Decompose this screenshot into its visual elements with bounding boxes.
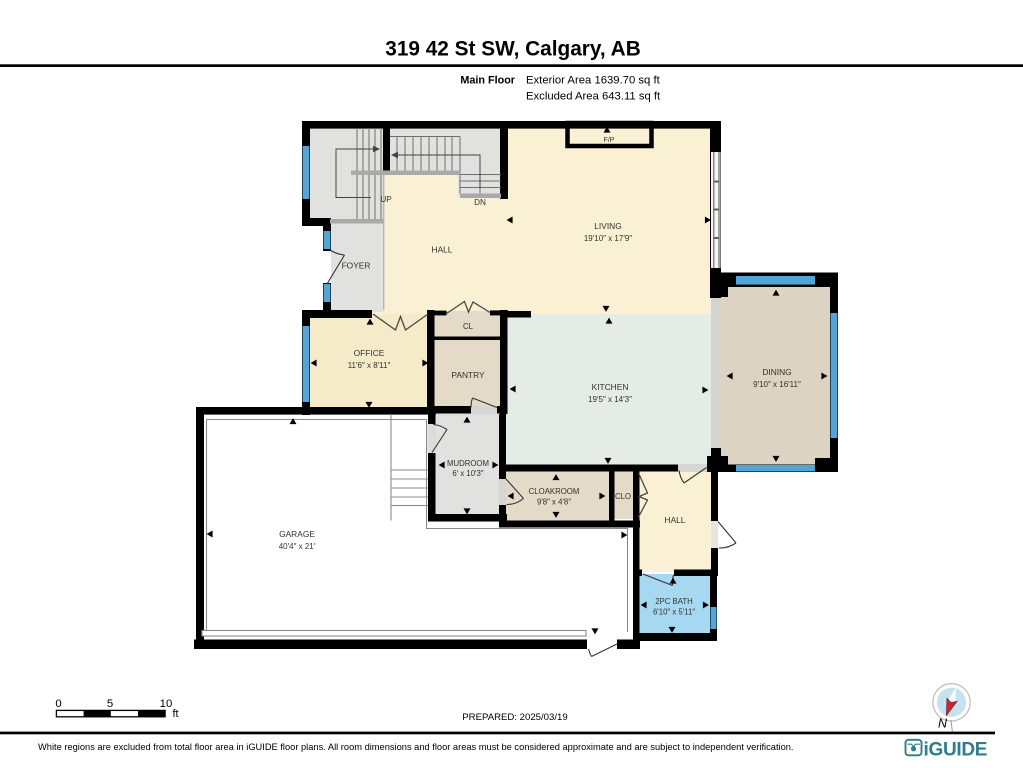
svg-text:iGUIDE: iGUIDE (924, 740, 988, 761)
svg-text:CLO: CLO (615, 492, 631, 501)
svg-text:2PC BATH: 2PC BATH (655, 597, 693, 606)
svg-text:GARAGE: GARAGE (279, 529, 315, 539)
svg-text:0: 0 (55, 698, 61, 710)
svg-text:9′10″ x 16′11″: 9′10″ x 16′11″ (753, 380, 801, 389)
svg-text:LIVING: LIVING (594, 221, 621, 231)
svg-text:DINING: DINING (762, 367, 791, 377)
svg-text:Main Floor: Main Floor (460, 75, 515, 87)
svg-text:CLOAKROOM: CLOAKROOM (529, 487, 580, 496)
svg-text:DN: DN (474, 198, 486, 207)
svg-text:10: 10 (160, 698, 173, 710)
svg-text:40′4″ x 21′: 40′4″ x 21′ (279, 542, 316, 551)
svg-text:19′5″ x 14′3″: 19′5″ x 14′3″ (588, 395, 632, 404)
svg-text:White regions are excluded fro: White regions are excluded from total fl… (38, 742, 794, 752)
svg-text:9′8″ x 4′8″: 9′8″ x 4′8″ (537, 498, 571, 507)
svg-text:HALL: HALL (432, 245, 453, 255)
svg-text:11′6″ x 8′11″: 11′6″ x 8′11″ (348, 361, 391, 370)
svg-text:5: 5 (107, 698, 113, 710)
svg-text:MUDROOM: MUDROOM (447, 459, 489, 468)
svg-text:KITCHEN: KITCHEN (592, 382, 629, 392)
svg-text:Exterior Area 1639.70 sq ft: Exterior Area 1639.70 sq ft (526, 75, 661, 87)
svg-text:PREPARED: 2025/03/19: PREPARED: 2025/03/19 (462, 712, 567, 723)
svg-text:6′10″ x 5′11″: 6′10″ x 5′11″ (653, 608, 695, 617)
svg-text:F/P: F/P (604, 137, 615, 144)
svg-text:UP: UP (380, 195, 392, 204)
svg-text:19′10″ x 17′9″: 19′10″ x 17′9″ (584, 234, 632, 243)
svg-text:319 42 St SW, Calgary, AB: 319 42 St SW, Calgary, AB (385, 38, 640, 61)
svg-text:Excluded Area 643.11 sq ft: Excluded Area 643.11 sq ft (526, 91, 661, 103)
svg-text:CL: CL (463, 322, 474, 331)
svg-text:ft: ft (173, 708, 179, 720)
svg-text:6′ x 10′3″: 6′ x 10′3″ (452, 469, 483, 478)
svg-text:HALL: HALL (665, 515, 686, 525)
svg-text:FOYER: FOYER (342, 261, 371, 271)
svg-text:N: N (938, 717, 948, 731)
svg-text:OFFICE: OFFICE (354, 348, 385, 358)
svg-text:PANTRY: PANTRY (451, 370, 485, 380)
